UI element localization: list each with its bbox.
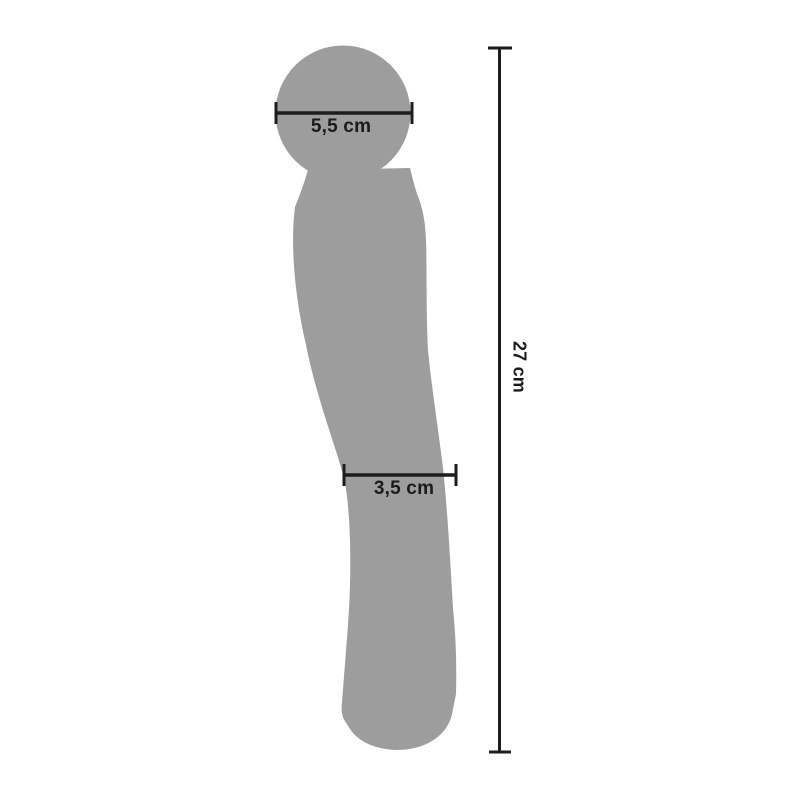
total-length-dimension (488, 48, 512, 752)
product-body-shape (293, 168, 456, 750)
product-dimension-diagram: 5,5 cm 3,5 cm 27 cm (0, 0, 800, 800)
shaft-width-label: 3,5 cm (374, 478, 434, 500)
diagram-canvas (0, 0, 800, 800)
head-width-label: 5,5 cm (311, 116, 371, 138)
product-silhouette (276, 46, 457, 751)
total-length-label: 27 cm (509, 341, 530, 393)
